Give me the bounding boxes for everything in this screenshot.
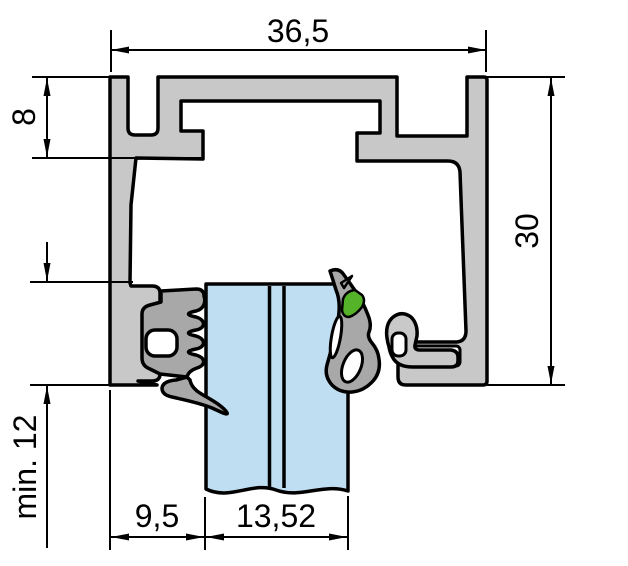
arrowhead	[206, 534, 224, 541]
arrowhead	[44, 139, 51, 157]
arrowhead	[44, 263, 51, 281]
dimension-label-glass-thickness: 13,52	[236, 498, 316, 534]
dimension-label-rebate: 9,5	[135, 498, 179, 534]
arrowhead	[186, 534, 204, 541]
dimension-label-profile-height: 30	[509, 213, 545, 249]
glass-unit	[206, 284, 348, 493]
arrowhead	[44, 78, 51, 96]
dimension-label-groove-height: 8	[6, 108, 42, 126]
dimension-label-overall-width: 36,5	[267, 13, 329, 49]
dimension-overall-width: 36,5	[111, 13, 486, 72]
dimension-profile-height: 30	[487, 77, 565, 385]
gasket-clip-notch	[392, 333, 406, 356]
arrowhead	[548, 78, 555, 96]
glass-pane	[206, 284, 348, 493]
arrowhead	[329, 534, 347, 541]
arrowhead	[44, 386, 51, 404]
arrowhead	[548, 366, 555, 384]
technical-drawing-canvas: 36,5 8 30 min. 12	[0, 0, 628, 566]
arrowhead	[468, 47, 486, 54]
dimension-label-min-insertion: min. 12	[7, 415, 43, 520]
arrowhead	[111, 47, 129, 54]
arrowhead	[111, 534, 129, 541]
left-gasket-hole	[146, 330, 177, 356]
